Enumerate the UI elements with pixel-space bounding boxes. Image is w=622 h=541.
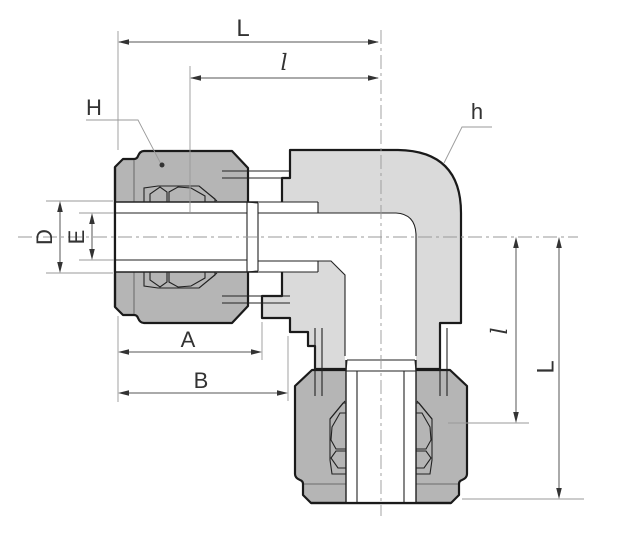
label-H: H	[86, 95, 102, 120]
label-E: E	[64, 230, 89, 245]
label-l-right: l	[488, 327, 513, 334]
leader-H-dot	[160, 163, 165, 168]
label-L-top: L	[236, 15, 249, 42]
label-B: B	[194, 368, 209, 393]
drawing-canvas: L l H h D E A B l L	[0, 0, 622, 541]
label-h: h	[471, 99, 483, 124]
elbow-fitting-drawing: L l H h D E A B l L	[0, 0, 622, 541]
label-A: A	[181, 327, 196, 352]
leader-h	[444, 127, 492, 163]
label-l-top: l	[280, 51, 287, 76]
label-L-right: L	[532, 360, 559, 373]
label-D: D	[32, 229, 57, 245]
